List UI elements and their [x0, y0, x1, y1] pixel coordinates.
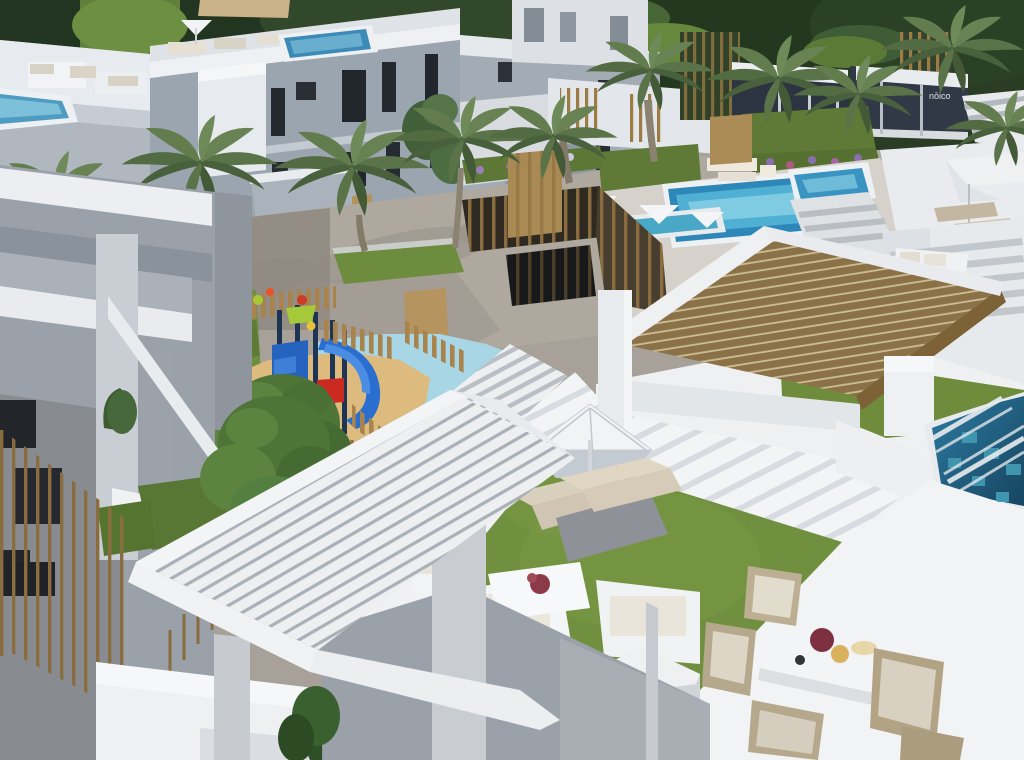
svg-text:nōico: nōico: [929, 91, 951, 101]
